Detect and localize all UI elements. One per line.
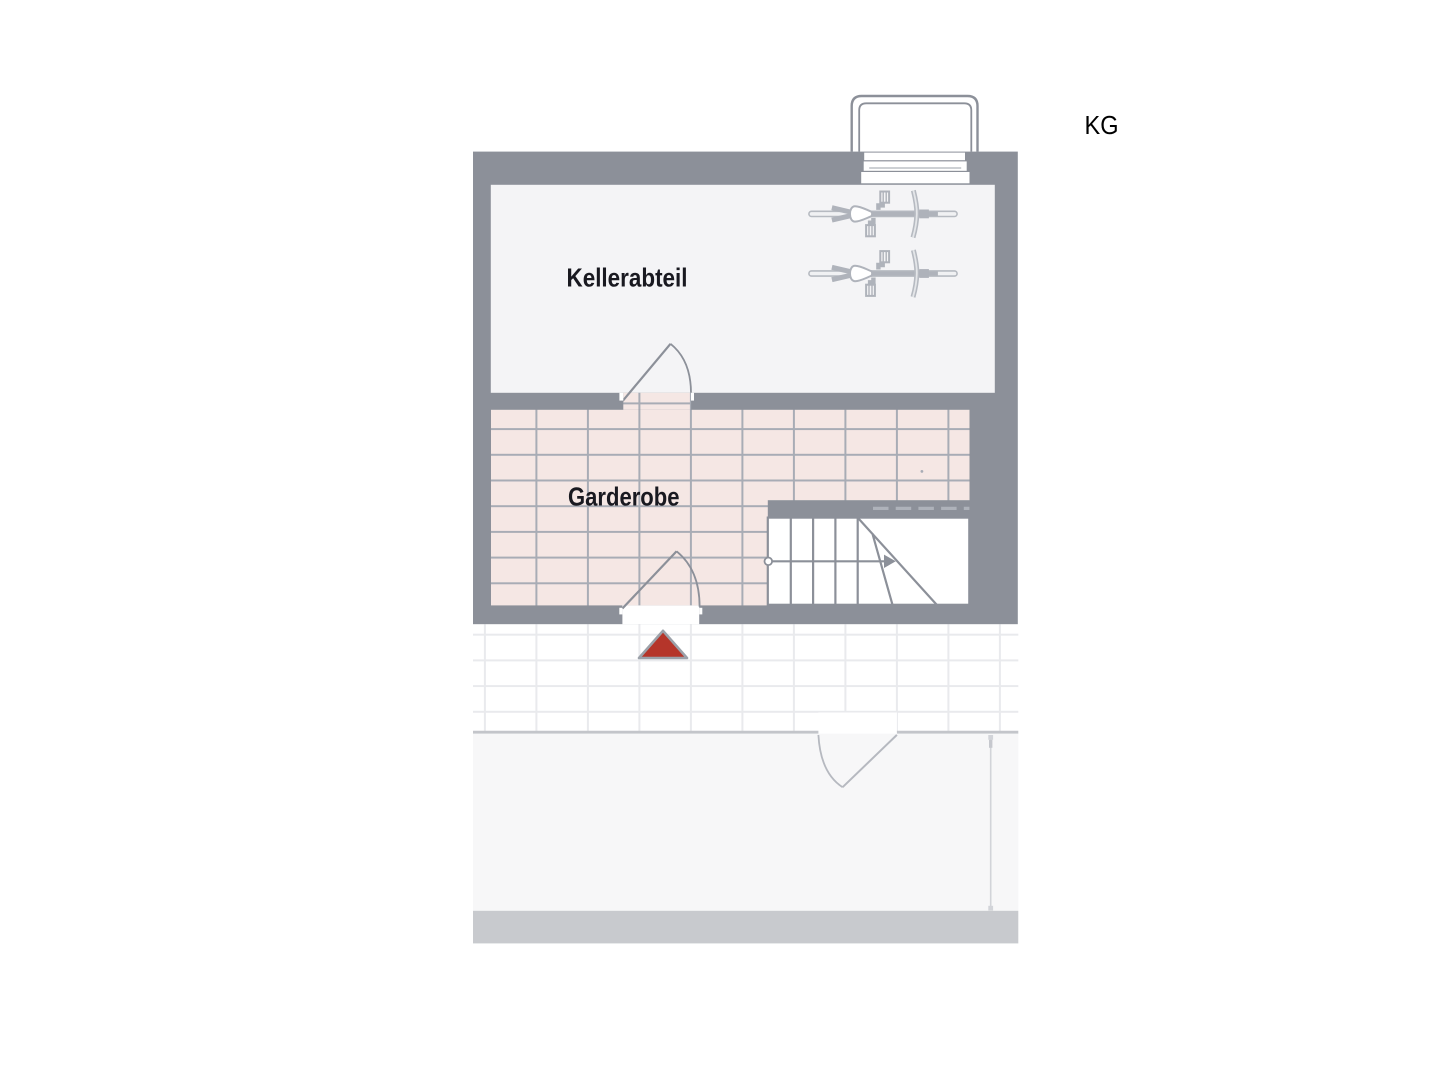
svg-text:Kellerabteil: Kellerabteil	[567, 262, 688, 292]
svg-text:Garderobe: Garderobe	[568, 482, 680, 512]
svg-text:KG: KG	[1085, 110, 1119, 140]
